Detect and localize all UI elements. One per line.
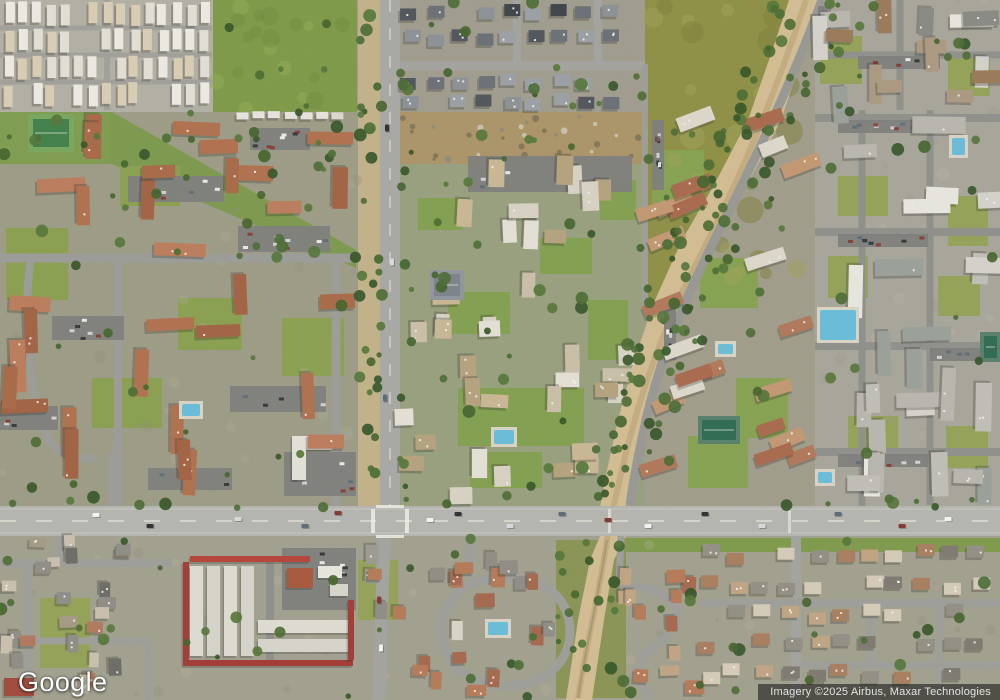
imagery-noise [0,0,1000,700]
noise-overlay [0,0,1000,700]
attribution-bar: Imagery ©2025 Airbus, Maxar Technologies [758,684,1000,700]
map-viewport[interactable]: Google Imagery ©2025 Airbus, Maxar Techn… [0,0,1000,700]
attribution-text: Imagery ©2025 Airbus, Maxar Technologies [770,686,991,698]
satellite-imagery [0,0,1000,700]
google-logo[interactable]: Google [18,667,107,698]
